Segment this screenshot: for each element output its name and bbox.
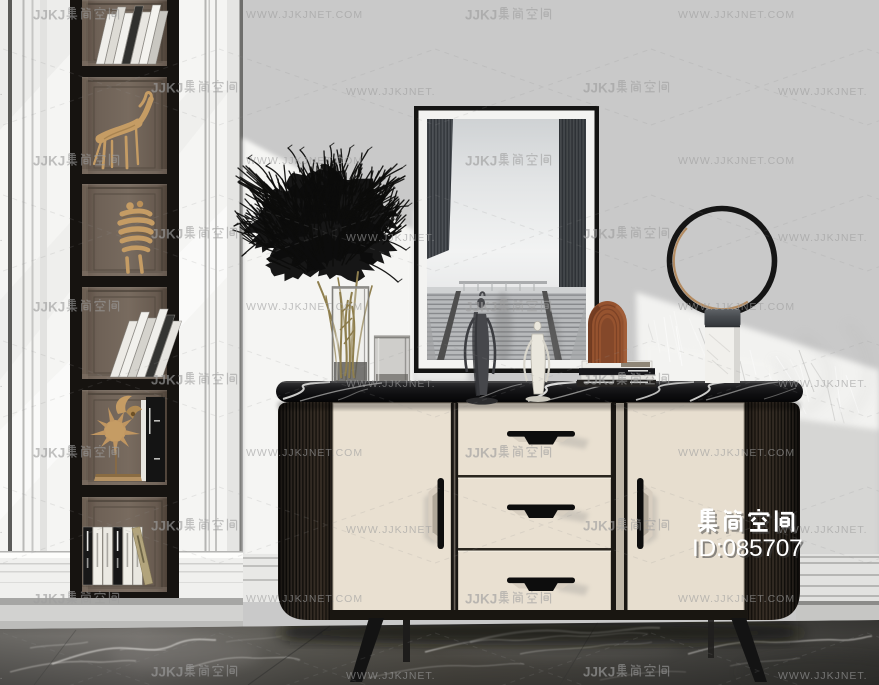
svg-text:ID:085707: ID:085707	[692, 535, 802, 562]
